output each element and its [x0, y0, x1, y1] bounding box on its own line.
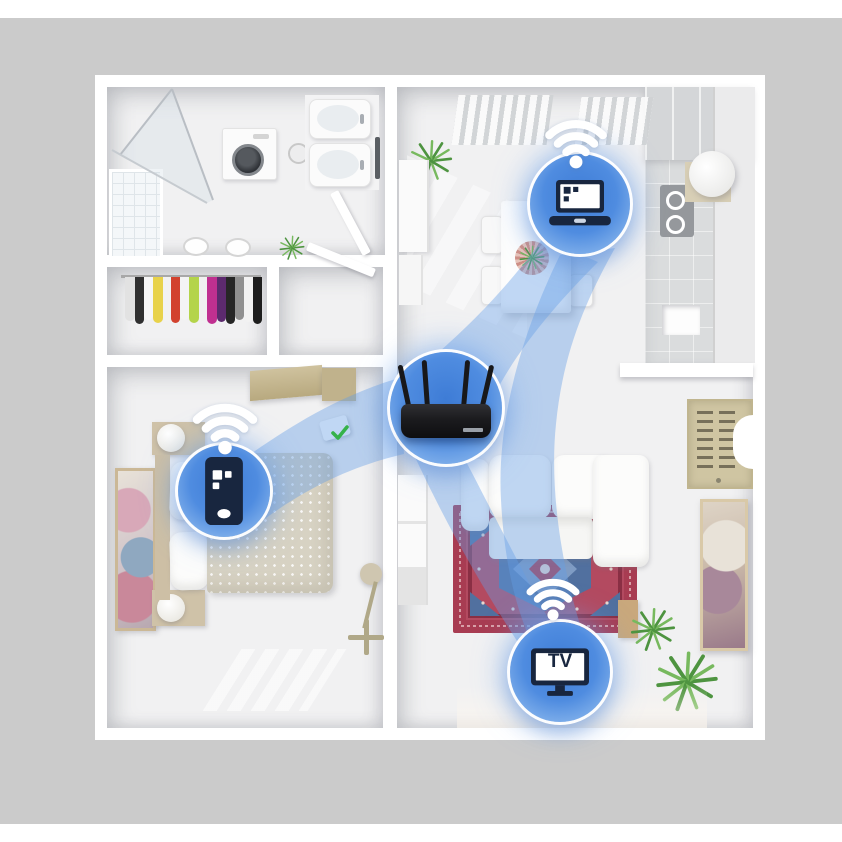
kitchen-niche [662, 305, 700, 335]
floor-lamp-shade [360, 563, 382, 585]
washing-machine [222, 128, 277, 180]
router-body [401, 404, 491, 438]
bedroom-painting [115, 468, 156, 631]
kitchen-column [689, 151, 735, 197]
room-closet [107, 267, 267, 355]
wall-segment [620, 363, 753, 377]
sofa-armrest [461, 459, 489, 531]
toilet [183, 237, 209, 256]
floor-light-patch [203, 649, 347, 711]
bathroom-plant [279, 235, 305, 261]
sideboard [399, 255, 423, 305]
sink-basin [309, 99, 371, 139]
smartphone-circle [178, 445, 270, 537]
dining-chair [481, 216, 503, 254]
tv-circle: TV [510, 622, 610, 722]
sideboard [399, 160, 429, 252]
laptop-icon [549, 180, 611, 228]
room-bathroom [107, 87, 385, 255]
router-label [463, 428, 483, 432]
wifi-signal-icon [180, 388, 270, 455]
bed-pillow [169, 531, 209, 590]
wifi-signal-icon [516, 566, 590, 621]
living-painting [700, 499, 748, 651]
hanging-clothes [125, 277, 262, 325]
sofa-chaise [593, 455, 649, 567]
laptop-circle [530, 154, 630, 254]
sink-counter [305, 95, 379, 190]
tv-screen-label: TV [531, 651, 589, 673]
burner [666, 215, 685, 234]
wardrobe-unit [322, 368, 356, 401]
bidet [225, 238, 251, 257]
ac-vent-panel [687, 399, 753, 489]
table-plant [519, 245, 545, 271]
floor-lamp-base [364, 619, 369, 655]
smartphone-icon [205, 457, 243, 525]
router-antenna [461, 360, 470, 408]
router-circle [390, 352, 502, 464]
check-icon [330, 422, 350, 442]
towel-rack [375, 137, 380, 179]
panel-semicircle [733, 415, 753, 469]
router-antenna [422, 360, 430, 408]
living-cabinet [398, 475, 428, 605]
kitchen-counter [713, 87, 755, 363]
sofa-seat [489, 517, 593, 559]
living-plant [630, 607, 676, 653]
router [390, 352, 502, 464]
wifi-signal-icon [533, 105, 619, 169]
room-entry [279, 267, 383, 355]
dining-chair [569, 274, 593, 307]
bed-headboard [155, 455, 170, 600]
washer-panel [253, 134, 269, 139]
dining-chair [481, 266, 503, 305]
washer-door [232, 144, 264, 176]
burner [666, 191, 685, 210]
sink-basin [309, 143, 371, 187]
sofa-back-cushion [489, 455, 551, 519]
product-illustration: TV [0, 0, 842, 842]
